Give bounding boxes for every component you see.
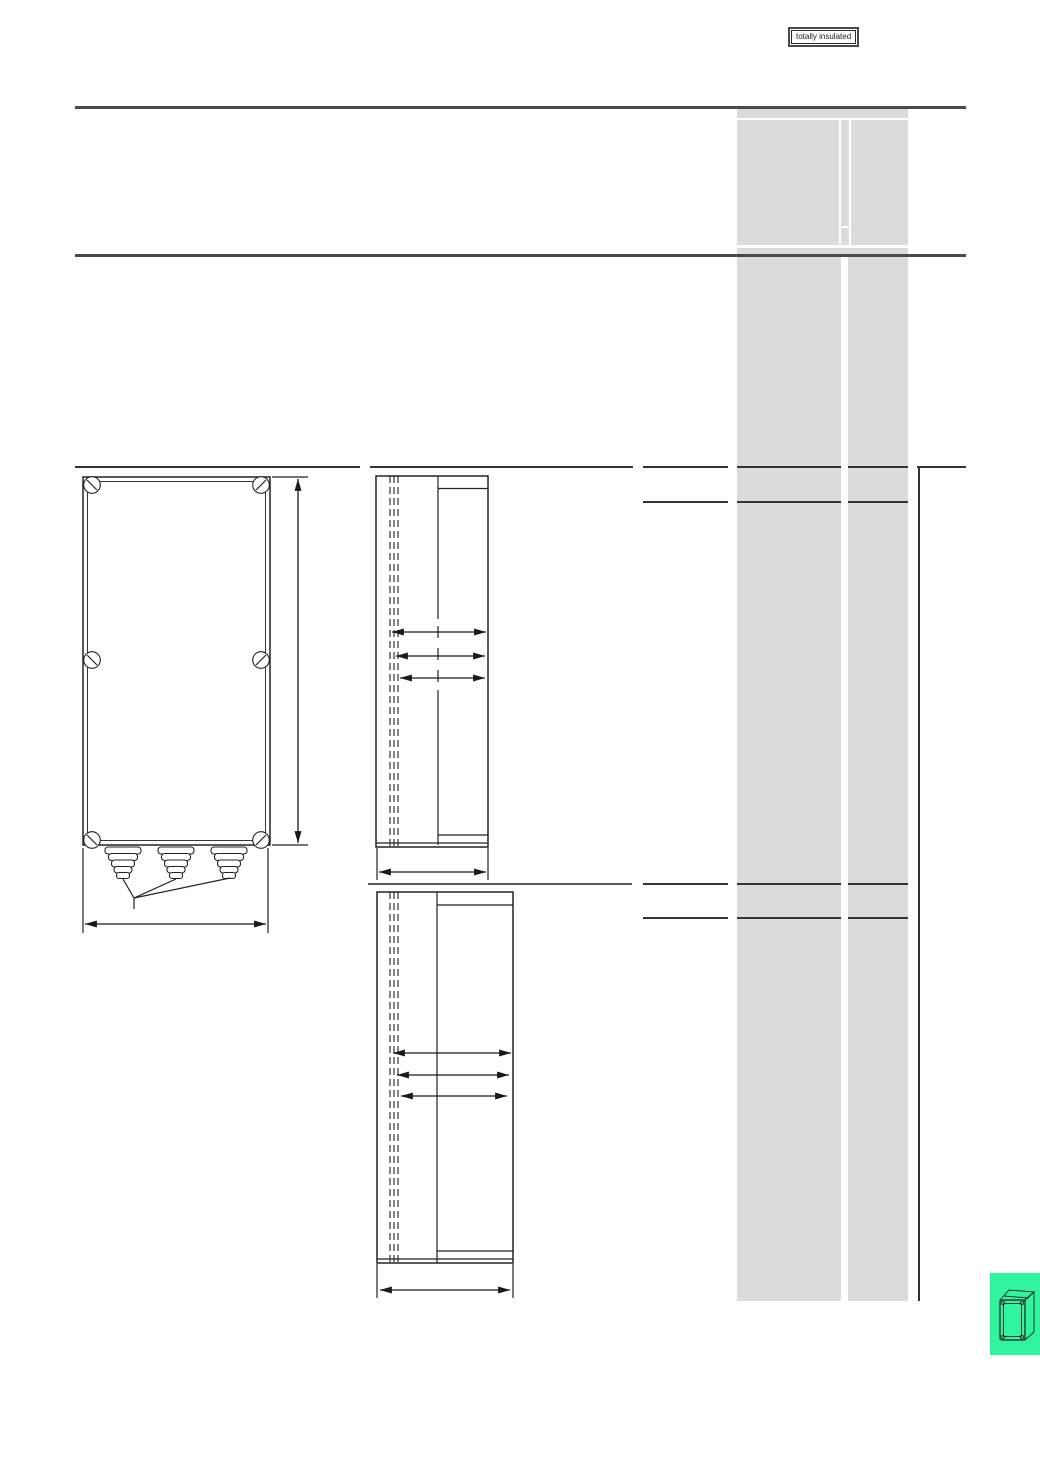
table-row-line [737,501,841,503]
table-row-line [737,883,841,885]
table-row-line [848,883,908,885]
table-row-line [643,883,728,885]
header-shaded-columns [737,109,908,254]
table-right-border [918,467,920,1301]
table-row-line [848,501,908,503]
table-row-line [643,466,728,468]
header-subcolumn-divider [841,226,849,228]
category-tab [990,1273,1040,1355]
table-shaded-column-left [737,257,841,1301]
gland-leader-lines [123,878,230,909]
table-shaded-column-right [848,257,908,1301]
catalog-page: totally insulated [0,0,1040,1473]
header-cell-divider [737,245,908,248]
header-subcolumn-line [849,120,851,246]
screw-icon [84,477,270,849]
front-view-drawing [70,470,320,945]
cable-gland-icon [211,847,247,879]
table-row-line [643,501,728,503]
side-view-shallow-drawing [370,470,530,945]
table-row-line [643,917,728,919]
totally-insulated-badge: totally insulated [788,27,859,47]
table-row-line [848,917,908,919]
cable-gland-icon [158,847,194,879]
totally-insulated-label: totally insulated [791,30,856,44]
side-view-deep-drawing [370,885,530,1310]
table-row-line [737,466,841,468]
enclosure-3d-icon [990,1273,1040,1355]
cable-gland-icon [105,847,141,879]
table-row-line [848,466,908,468]
table-row-line [917,466,966,468]
table-row-line [737,917,841,919]
header-cell-divider [737,118,908,120]
table-row-line [75,466,360,468]
table-row-line [370,466,633,468]
